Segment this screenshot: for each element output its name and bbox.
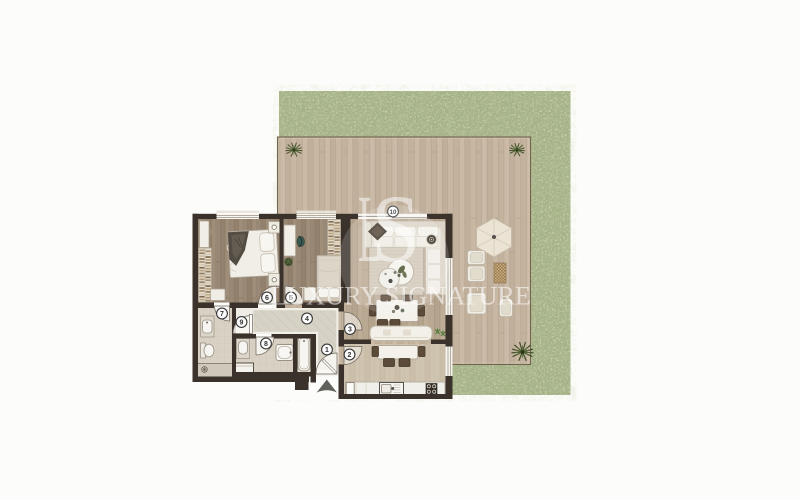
- svg-text:2: 2: [348, 352, 352, 359]
- svg-text:3: 3: [348, 327, 352, 334]
- svg-text:S: S: [371, 176, 421, 283]
- svg-text:6: 6: [265, 295, 269, 302]
- svg-text:7: 7: [220, 311, 224, 318]
- svg-text:1: 1: [325, 347, 329, 354]
- svg-text:LUXURY SIGNATURE: LUXURY SIGNATURE: [271, 282, 531, 311]
- svg-text:9: 9: [240, 320, 244, 327]
- svg-text:4: 4: [305, 316, 309, 323]
- svg-text:8: 8: [264, 341, 268, 348]
